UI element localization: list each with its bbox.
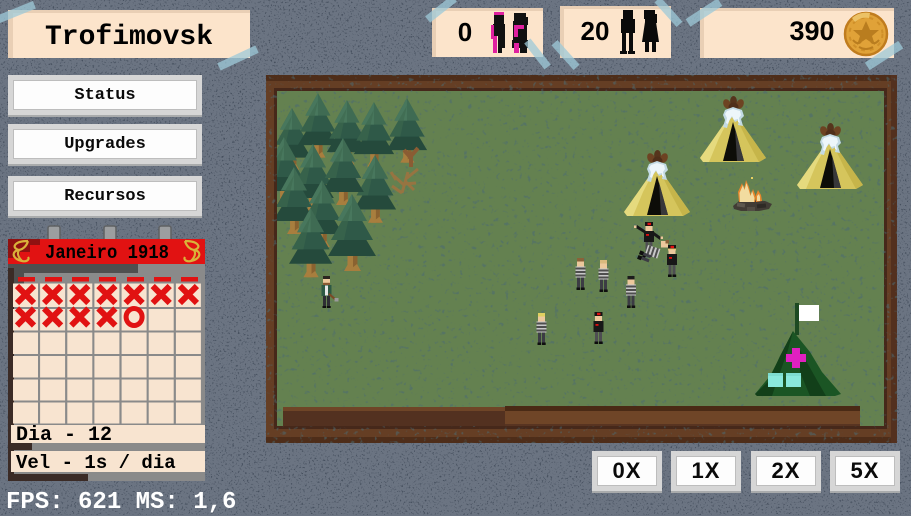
svg-text:Vel - 1s / dia: Vel - 1s / dia	[16, 452, 176, 474]
svg-text:Janeiro 1918: Janeiro 1918	[45, 242, 169, 264]
